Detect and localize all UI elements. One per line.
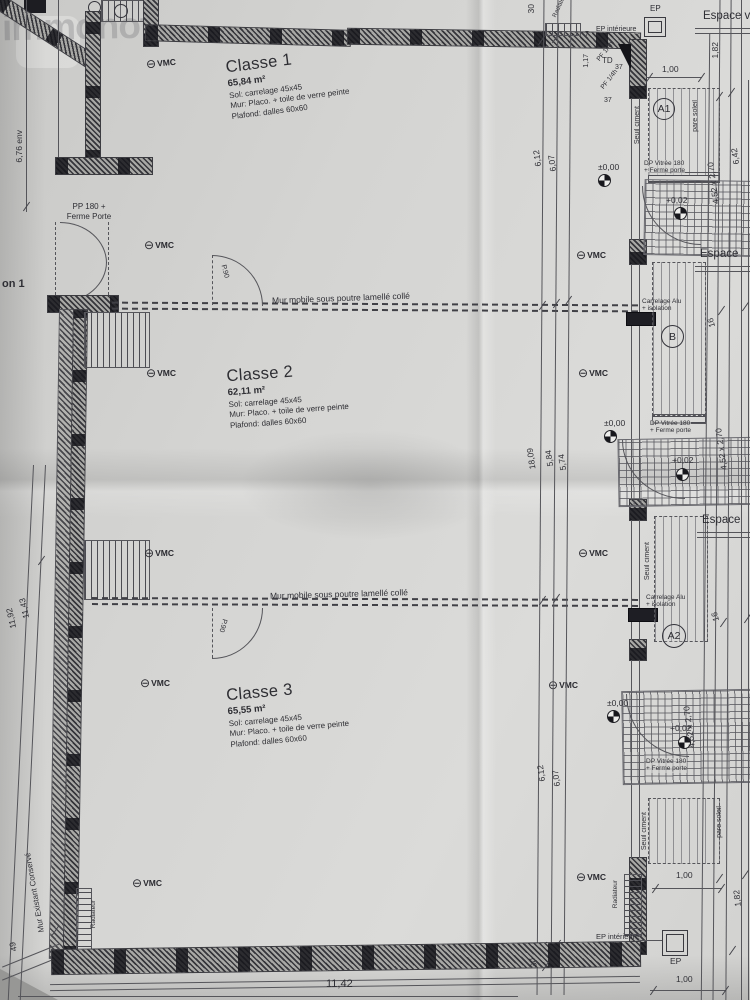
wall-left-upper (86, 12, 100, 162)
pare-soleil-band (648, 798, 720, 864)
vmc-icon: ⊖ (578, 548, 588, 558)
dim-label: 7 (585, 31, 589, 38)
dim-label: 6,07 (550, 769, 562, 787)
vmc-marker: ⊖VMC (144, 548, 174, 558)
vmc-marker: ⊖VMC (578, 368, 608, 378)
ep-interieure-label: EP intérieure (596, 932, 639, 941)
dim-label: 11,42 (326, 978, 353, 990)
terrace-edge (697, 532, 750, 533)
radiator-label: Radiateur (612, 880, 619, 908)
vmc-icon: ⊖ (140, 678, 150, 688)
door-swing-arc (60, 222, 107, 263)
level-label: ±0,00 (607, 698, 628, 708)
room-classe-1: Classe 1 65,84 m² Sol: carrelage 45x45 M… (224, 43, 351, 122)
door-leaf (108, 222, 109, 300)
seuil-label: Seuil ciment (644, 542, 651, 580)
espace-label: Espace (700, 248, 738, 260)
dim-tick (728, 88, 735, 98)
vmc-icon: ⊖ (146, 58, 157, 69)
level-marker-icon (676, 468, 689, 481)
wall (56, 158, 152, 174)
dim-line (18, 996, 518, 997)
vmc-icon: ⊖ (144, 240, 154, 250)
dim-label: 6,07 (546, 154, 558, 172)
stair-marker-circle (114, 4, 128, 18)
dim-tick (744, 614, 750, 624)
pare-soleil-band (654, 516, 708, 642)
vmc-marker: ⊖VMC (144, 240, 174, 250)
door-swing-arc (212, 608, 263, 659)
level-label: ±0,00 (604, 418, 625, 428)
dim-label: 6,12 (531, 149, 543, 167)
floorplan-photo: immonot 6,76 env PP 180 + Ferme Porte on… (0, 0, 750, 1000)
radiator (624, 874, 642, 936)
room-label-partial: on 1 (2, 278, 25, 290)
vmc-marker: ⊖VMC (578, 548, 608, 558)
glazing-line (631, 520, 632, 640)
dim-line (646, 77, 702, 78)
radiator-label: Radiateur (552, 0, 568, 19)
zone-marker-b: B (661, 325, 684, 348)
dim-label: 1,00 (676, 870, 693, 880)
zone-marker-a2: A2 (662, 624, 686, 648)
vmc-icon: ⊖ (132, 878, 142, 888)
zone-marker-a1: A1 (653, 98, 675, 120)
ep-box (662, 930, 688, 956)
dim-label: 6,76 env (14, 130, 24, 163)
vmc-marker: ⊖VMC (576, 872, 606, 882)
terrace-edge (695, 271, 750, 272)
dim-line (26, 0, 27, 212)
leader-line (638, 940, 662, 941)
dim-label: 1,00 (662, 64, 679, 74)
vmc-marker: ⊖VMC (140, 678, 170, 688)
door-label-dp: DP Vitrée 180 + Ferme porte (646, 758, 687, 773)
dim-label: 1,82 (731, 890, 743, 908)
wall-right (630, 640, 646, 660)
ep-interieure-label: EP intérieure (596, 26, 636, 33)
espace-label: Espace (702, 514, 740, 526)
dim-label: 37 (604, 97, 612, 104)
door-swing-arc (212, 255, 263, 306)
room-classe-3: Classe 3 65,55 m² Sol: carrelage 45x45 M… (225, 675, 350, 750)
dim-label: 30 (526, 4, 536, 13)
level-label: +0,02 (666, 195, 688, 205)
pare-soleil-label: pare soleil (692, 100, 699, 132)
dim-label: 1,17 (583, 54, 590, 68)
vmc-marker: ⊖VMC (146, 368, 176, 378)
dim-label: 1,00 (676, 974, 693, 984)
door-label-pf: PF 1/4h (600, 68, 620, 90)
vmc-icon: ⊖ (578, 368, 588, 378)
vmc-icon: ⊖ (144, 548, 154, 558)
radiator (545, 23, 581, 36)
dim-label: 5,74 (556, 453, 568, 471)
espace-label: Espace ve (703, 10, 750, 22)
ep-box (644, 17, 666, 37)
level-label: +0,02 (672, 455, 694, 465)
dim-tick (718, 306, 725, 316)
glazing-line (631, 98, 632, 240)
terrace-line (748, 80, 749, 1000)
terrace-edge (695, 266, 750, 267)
glazing-line (639, 520, 640, 640)
level-marker-icon (674, 207, 687, 220)
door-label-dp: DP Vitrée 180 + Ferme porte (650, 420, 691, 435)
vmc-marker: ⊖VMC (146, 57, 177, 70)
level-marker-icon (598, 174, 611, 187)
wall-top (146, 25, 350, 46)
paper-fold-shadow (240, 430, 500, 540)
ep-label: EP (650, 4, 661, 13)
pare-soleil-label: pare soleil (716, 806, 723, 838)
dim-label: 5,84 (543, 449, 555, 467)
dim-line (650, 990, 726, 991)
vmc-icon: ⊖ (146, 368, 156, 378)
seuil-label: Seuil ciment (641, 812, 648, 850)
mobile-wall (112, 302, 638, 313)
ep-label: EP (670, 956, 681, 966)
room-classe-2: Classe 2 62,11 m² Sol: carrelage 45x45 M… (226, 358, 350, 431)
terrace-edge (697, 537, 750, 538)
wall-right (630, 40, 646, 98)
dim-label: 6,12 (535, 764, 547, 782)
corridor-line (58, 0, 59, 158)
door-label-pp180: PP 180 + Ferme Porte (60, 202, 118, 221)
dim-line (652, 888, 722, 889)
radiator-label: Radiateur (90, 900, 97, 928)
terrace-line (741, 0, 742, 1000)
radiator (84, 312, 150, 368)
level-marker-icon (604, 430, 617, 443)
terrace-edge (695, 33, 750, 34)
seuil-label: Seuil ciment (634, 106, 641, 144)
level-label: ±0,00 (598, 162, 619, 172)
radiator (84, 540, 150, 600)
vmc-icon: ⊖ (576, 250, 586, 260)
door-label-dp: DP Vitrée 180 + Ferme porte (644, 160, 685, 175)
level-marker-icon (607, 710, 620, 723)
vmc-marker: ⊖VMC (132, 878, 162, 888)
dim-tick (716, 874, 723, 884)
vmc-marker: ⊖VMC (576, 250, 606, 260)
dim-tick (729, 946, 736, 956)
dim-label: 37 (615, 64, 623, 71)
door-leaf (55, 222, 56, 300)
terrace-edge (695, 28, 750, 29)
vmc-icon: ⊖ (576, 872, 586, 882)
